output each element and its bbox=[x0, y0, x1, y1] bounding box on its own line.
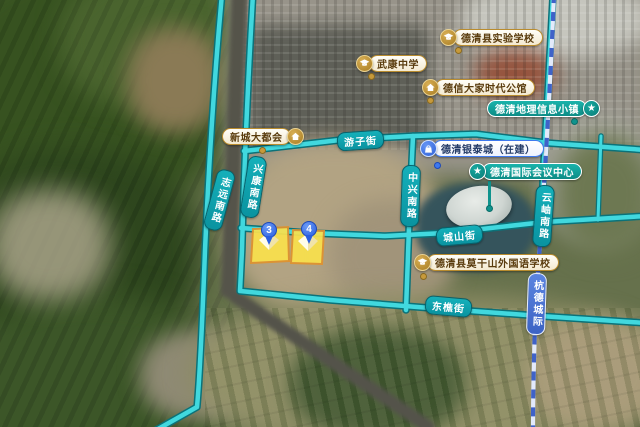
road-label-youzi: 游子街 bbox=[336, 129, 384, 151]
poi-geo-info-town[interactable]: ★ 德清地理信息小镇 bbox=[487, 100, 600, 117]
parcel-marker-3[interactable]: 3 bbox=[261, 222, 277, 238]
house-icon bbox=[422, 79, 439, 96]
poi-label: 德清县莫干山外国语学校 bbox=[427, 254, 559, 271]
school-icon bbox=[356, 55, 373, 72]
poi-wukang-school[interactable]: 武康中学 bbox=[356, 55, 427, 72]
poi-anchor-dot bbox=[434, 162, 441, 169]
poi-label: 新城大都会 bbox=[222, 128, 291, 145]
poi-dexin-residence[interactable]: 德信大家时代公馆 bbox=[422, 79, 535, 96]
road-label-dongqiao: 东樵街 bbox=[424, 295, 472, 318]
poi-label: 德信大家时代公馆 bbox=[435, 79, 535, 96]
poi-anchor-dot bbox=[455, 47, 462, 54]
marker-number: 4 bbox=[306, 224, 312, 235]
poi-pointer-stem bbox=[488, 181, 491, 207]
poi-xincheng-metropolis[interactable]: 新城大都会 bbox=[222, 128, 304, 145]
mall-icon bbox=[420, 140, 437, 157]
poi-anchor-dot bbox=[259, 147, 266, 154]
poi-anchor-dot bbox=[571, 118, 578, 125]
poi-anchor-dot bbox=[368, 73, 375, 80]
poi-moganshan-school[interactable]: 德清县莫干山外国语学校 bbox=[414, 254, 559, 271]
house-icon bbox=[287, 128, 304, 145]
poi-label: 德清国际会议中心 bbox=[482, 163, 582, 180]
road-xingkang-dongqiao bbox=[240, 0, 640, 323]
star-icon: ★ bbox=[583, 100, 600, 117]
poi-label: 德清县实验学校 bbox=[453, 29, 543, 46]
school-icon bbox=[414, 254, 431, 271]
poi-anchor-dot bbox=[420, 273, 427, 280]
poi-shiyan-school[interactable]: 德清县实验学校 bbox=[440, 29, 543, 46]
poi-anchor-dot bbox=[427, 97, 434, 104]
poi-anchor-dot bbox=[486, 205, 493, 212]
school-icon bbox=[440, 29, 457, 46]
poi-label: 武康中学 bbox=[369, 55, 427, 72]
satellite-map[interactable]: 德清县实验学校 武康中学 德信大家时代公馆 新城大都会 ★ 德清地理信息小镇 德… bbox=[0, 0, 640, 427]
poi-conference-center[interactable]: ★ 德清国际会议中心 bbox=[469, 163, 582, 180]
parcel-marker-4[interactable]: 4 bbox=[301, 221, 317, 237]
poi-label: 德清地理信息小镇 bbox=[487, 100, 587, 117]
road-label-zhongxing: 中兴南路 bbox=[400, 165, 421, 228]
railway-label-hangde: 杭德城际 bbox=[526, 273, 547, 336]
marker-number: 3 bbox=[266, 225, 272, 236]
poi-label: 德清银泰城（在建） bbox=[433, 140, 544, 157]
star-icon: ★ bbox=[469, 163, 486, 180]
poi-yintai-city[interactable]: 德清银泰城（在建） bbox=[420, 140, 544, 157]
